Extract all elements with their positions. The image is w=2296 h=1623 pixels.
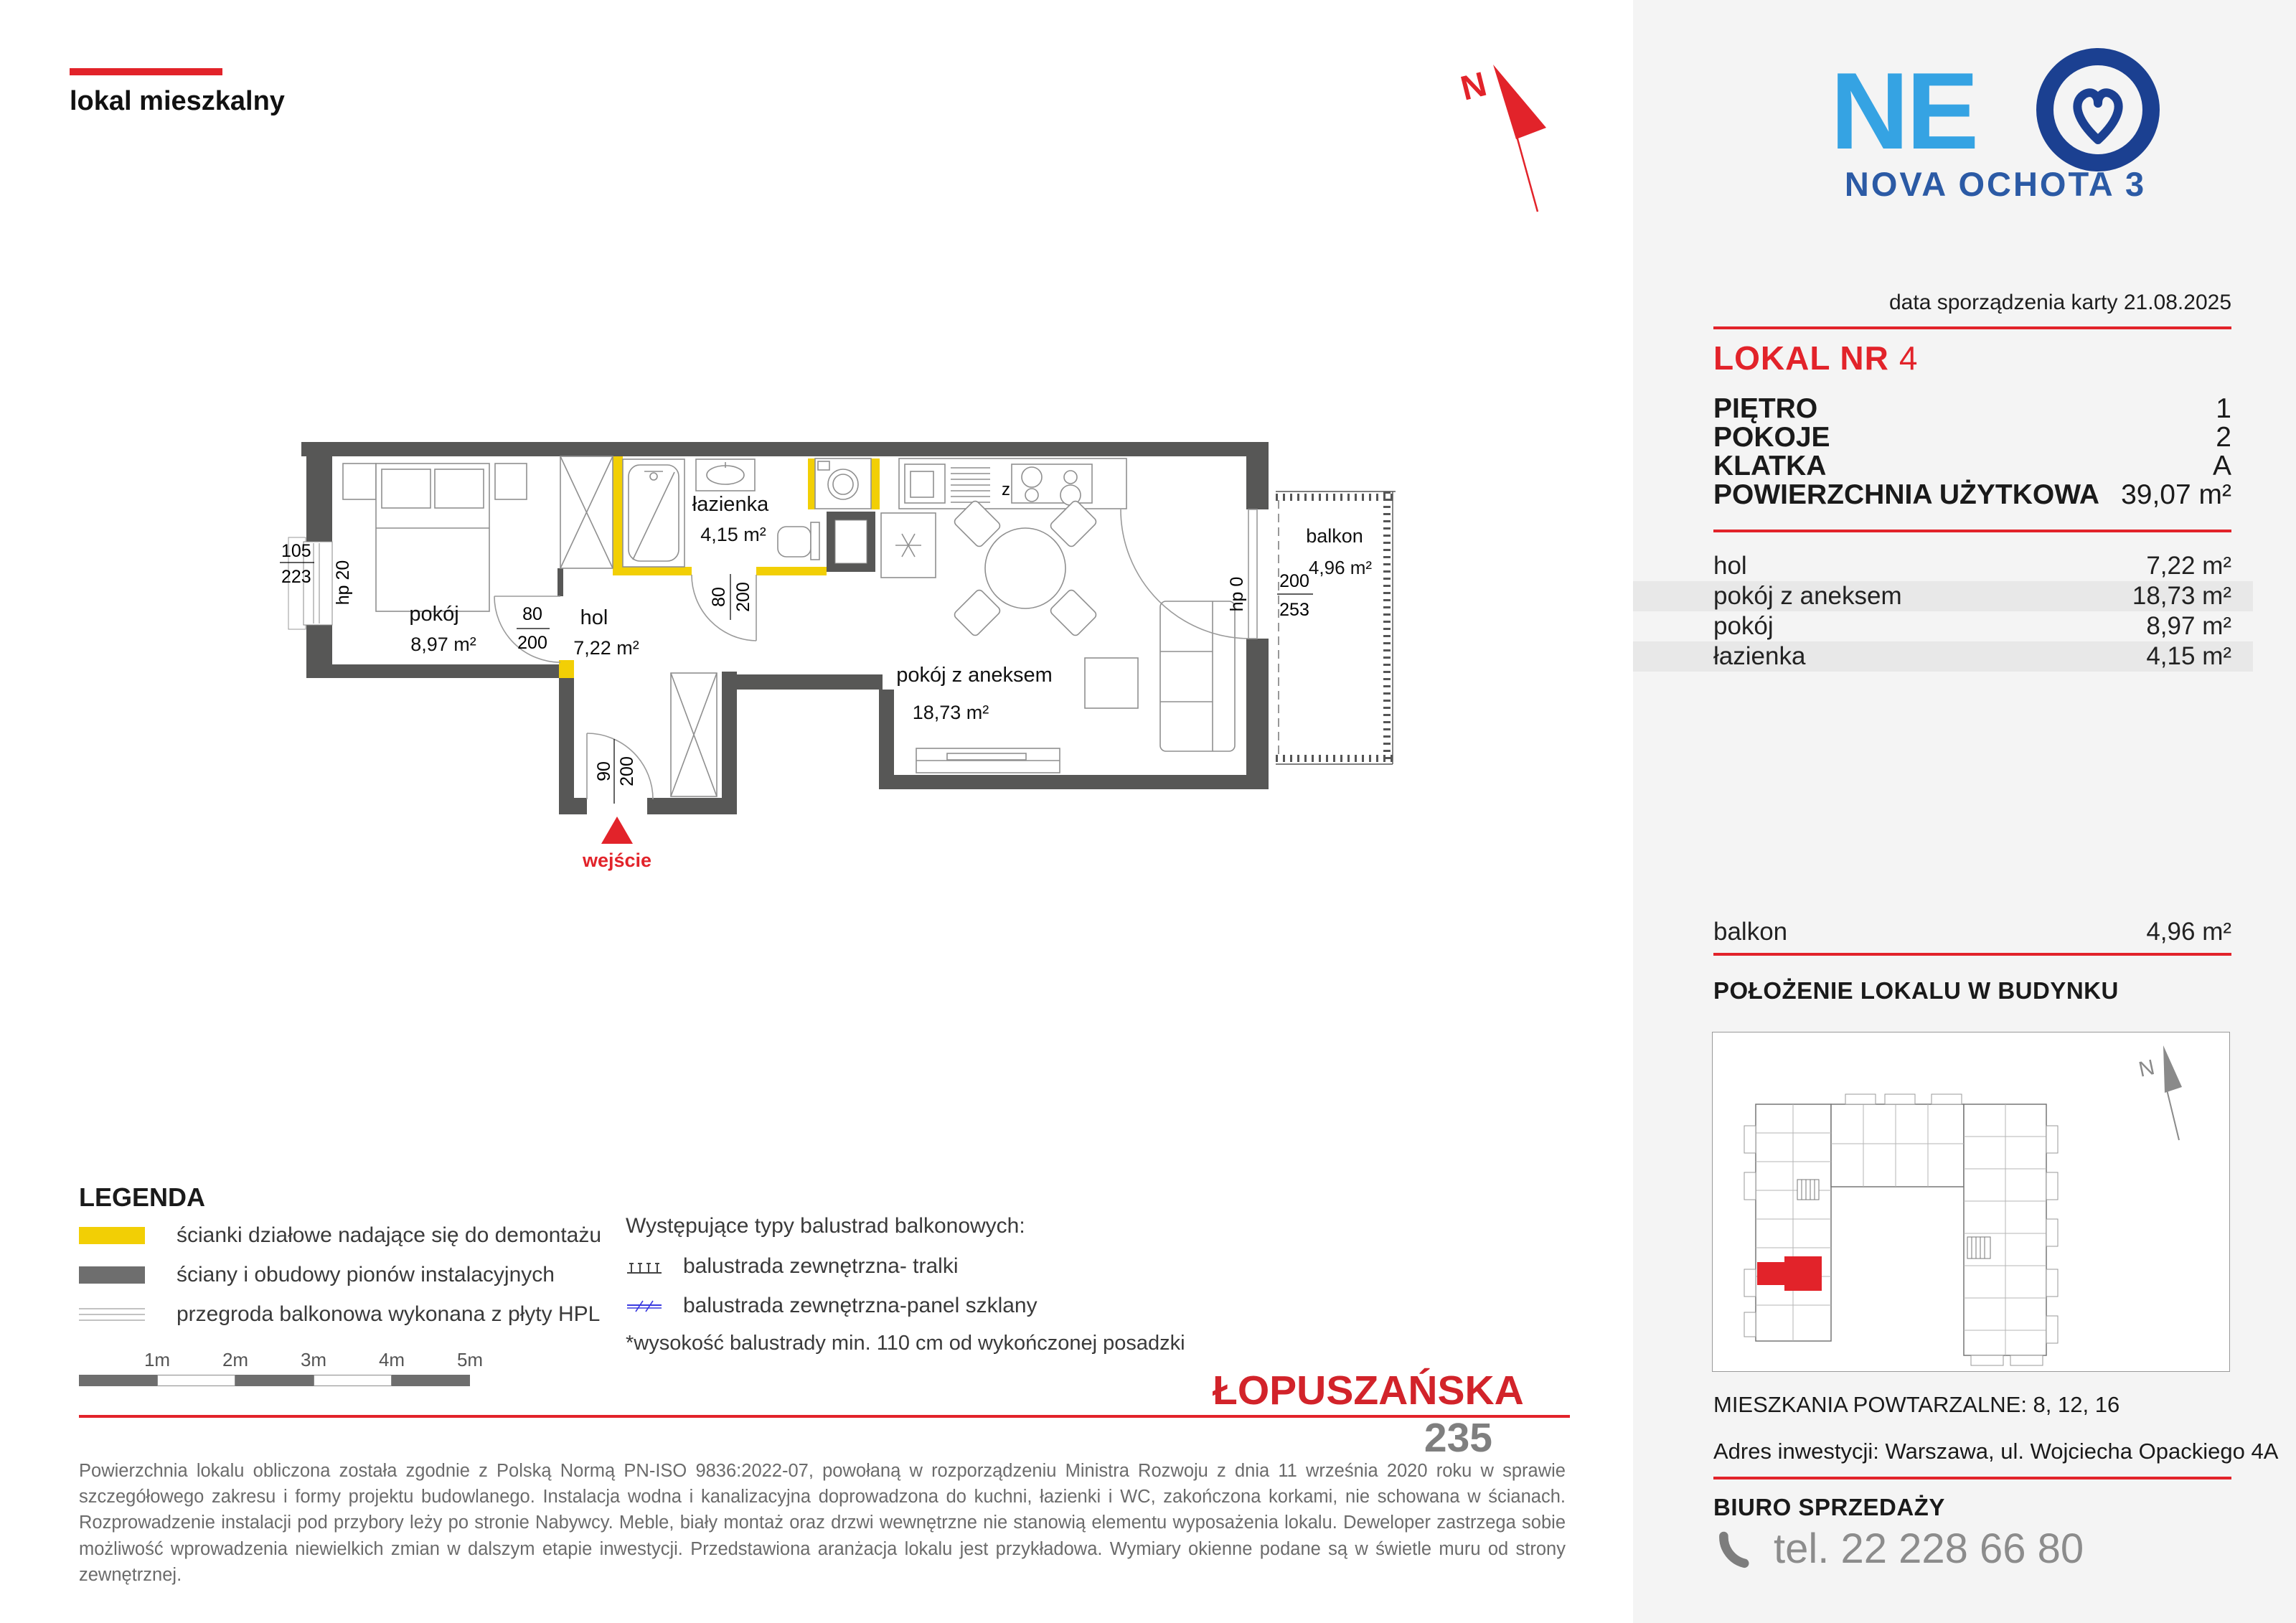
- legend-item-tralki: balustrada zewnętrzna- tralki: [626, 1254, 959, 1279]
- svg-text:18,73 m²: 18,73 m²: [913, 702, 989, 723]
- attr-staircase: KLATKA A: [1713, 452, 2231, 481]
- divider-2: [1713, 530, 2231, 532]
- svg-text:105: 105: [281, 541, 311, 561]
- svg-text:80: 80: [522, 604, 542, 624]
- unit-number: 4: [1899, 339, 1919, 377]
- heart-icon: [2077, 93, 2118, 140]
- gray-swatch-icon: [79, 1266, 145, 1284]
- location-heading: POŁOŻENIE LOKALU W BUDYNKU: [1713, 977, 2119, 1005]
- coffee-table: [1085, 658, 1138, 708]
- scale-1m: 1m: [136, 1349, 179, 1371]
- info-panel: NE NOVA OCHOTA 3 data sporządzenia karty…: [1633, 0, 2296, 1623]
- nightstand-left: [343, 464, 376, 499]
- washing-machine: [815, 458, 871, 509]
- map-north-arrow-icon: N: [2137, 1045, 2182, 1140]
- investment-address: Adres inwestycji: Warszawa, ul. Wojciech…: [1713, 1439, 2278, 1464]
- svg-text:80: 80: [709, 587, 729, 607]
- attr-area: POWIERZCHNIA UŻYTKOWA 39,07 m²: [1713, 481, 2231, 509]
- building-map: N: [1713, 1032, 2229, 1371]
- entrance-label: wejście: [582, 850, 651, 871]
- divider-1: [1713, 326, 2231, 329]
- balcony-row: balkon4,96 m²: [1713, 917, 2231, 947]
- nightstand-right: [495, 464, 527, 499]
- building-outline: [1756, 1104, 2046, 1355]
- floor-plan: wejście pokój 8,97 m² hol 7,22 m² łazien…: [280, 402, 1428, 904]
- divider-4: [1713, 1477, 2231, 1479]
- svg-text:łazienka: łazienka: [692, 493, 769, 516]
- scale-4m: 4m: [370, 1349, 413, 1371]
- svg-text:pokój z aneksem: pokój z aneksem: [896, 664, 1053, 687]
- legend-item-demountable: ścianki działowe nadające się do demonta…: [79, 1223, 601, 1248]
- bed: [376, 464, 489, 611]
- boiler: [881, 513, 936, 578]
- north-letter: N: [1460, 65, 1490, 108]
- project-logo: ŁOPUSZAŃSKA 235: [1213, 1367, 1492, 1462]
- svg-text:200: 200: [1279, 571, 1309, 591]
- yellow-swatch-icon: [79, 1227, 145, 1244]
- tv-bench: [916, 748, 1060, 773]
- dishwasher-label: z: [1002, 480, 1010, 499]
- glass-panel-icon: [626, 1297, 663, 1314]
- sales-office-heading: BIURO SPRZEDAŻY: [1713, 1494, 1945, 1521]
- legend-item-hpl: przegroda balkonowa wykonana z płyty HPL: [79, 1302, 600, 1327]
- legend-item-walls: ściany i obudowy pionów instalacyjnych: [79, 1263, 555, 1287]
- svg-text:200: 200: [517, 633, 547, 653]
- entrance-arrow-icon: [601, 817, 633, 844]
- bathtub: [623, 459, 684, 567]
- svg-text:balkon: balkon: [1306, 525, 1363, 547]
- repeat-units-note: MIESZKANIA POWTARZALNE: 8, 12, 16: [1713, 1392, 2119, 1418]
- hpl-swatch-icon: [79, 1308, 145, 1321]
- svg-text:200: 200: [617, 756, 637, 786]
- attr-floor: PIĘTRO 1: [1713, 395, 2231, 423]
- svg-text:N: N: [2137, 1055, 2157, 1082]
- unit-title: LOKAL NR4: [1713, 339, 1918, 377]
- room-row-hol: hol7,22 m²: [1713, 551, 2231, 581]
- svg-text:90: 90: [594, 761, 614, 781]
- toilet: [778, 522, 819, 560]
- scale-5m: 5m: [448, 1349, 491, 1371]
- legend-heading: LEGENDA: [79, 1182, 205, 1213]
- svg-text:4,96 m²: 4,96 m²: [1309, 557, 1372, 578]
- svg-text:4,15 m²: 4,15 m²: [700, 524, 766, 545]
- phone-row: tel. 22 228 66 80: [1713, 1525, 2084, 1573]
- furniture: [343, 456, 1235, 796]
- unit-type-label: lokal mieszkalny: [70, 86, 285, 117]
- bathroom-sink: [696, 459, 755, 491]
- dining-table: [953, 499, 1098, 637]
- card-date: data sporządzenia karty 21.08.2025: [1713, 291, 2231, 315]
- legend-item-glass: balustrada zewnętrzna-panel szklany: [626, 1294, 1038, 1318]
- tralki-icon: [626, 1258, 663, 1275]
- svg-text:200: 200: [733, 582, 753, 612]
- room-row-bath: łazienka4,15 m²: [1713, 641, 2231, 672]
- stove: [1012, 464, 1092, 505]
- svg-text:hol: hol: [580, 606, 608, 629]
- room-row-living: pokój z aneksem18,73 m²: [1713, 581, 2231, 611]
- type-accent-bar: [70, 68, 222, 75]
- building-map-box: N: [1712, 1032, 2230, 1372]
- svg-text:hp 0: hp 0: [1227, 577, 1247, 612]
- apartment-card-page: lokal mieszkalny N: [0, 0, 2296, 1623]
- svg-text:223: 223: [281, 567, 311, 587]
- disclaimer-text: Powierzchnia lokalu obliczona została zg…: [79, 1458, 1566, 1588]
- wardrobe-entry: [671, 673, 717, 796]
- balustrade-note: *wysokość balustrady min. 110 cm od wyko…: [626, 1332, 1185, 1355]
- wardrobe-hall: [560, 456, 613, 568]
- logo-o-ring: [2045, 57, 2151, 163]
- balustrade-heading: Występujące typy balustrad balkonowych:: [626, 1214, 1025, 1238]
- svg-text:hp 20: hp 20: [333, 560, 353, 606]
- sofa: [1160, 601, 1235, 751]
- room-row-bedroom: pokój8,97 m²: [1713, 611, 2231, 641]
- attr-rooms: POKOJE 2: [1713, 423, 2231, 452]
- svg-text:8,97 m²: 8,97 m²: [410, 634, 476, 655]
- scale-bar: [79, 1375, 470, 1386]
- svg-text:253: 253: [1279, 600, 1309, 620]
- scale-2m: 2m: [214, 1349, 257, 1371]
- scale-3m: 3m: [292, 1349, 335, 1371]
- phone-icon: [1713, 1530, 1752, 1568]
- neo-logo: NE NOVA OCHOTA 3: [1827, 39, 2164, 204]
- installation-shaft: [835, 520, 867, 563]
- logo-subtitle: NOVA OCHOTA 3: [1845, 165, 2146, 203]
- logo-ne: NE: [1830, 50, 1976, 172]
- svg-text:pokój: pokój: [409, 603, 458, 626]
- svg-text:7,22 m²: 7,22 m²: [573, 637, 639, 659]
- divider-3: [1713, 953, 2231, 956]
- north-arrow-icon: N: [1460, 57, 1561, 222]
- phone-number: tel. 22 228 66 80: [1774, 1525, 2084, 1573]
